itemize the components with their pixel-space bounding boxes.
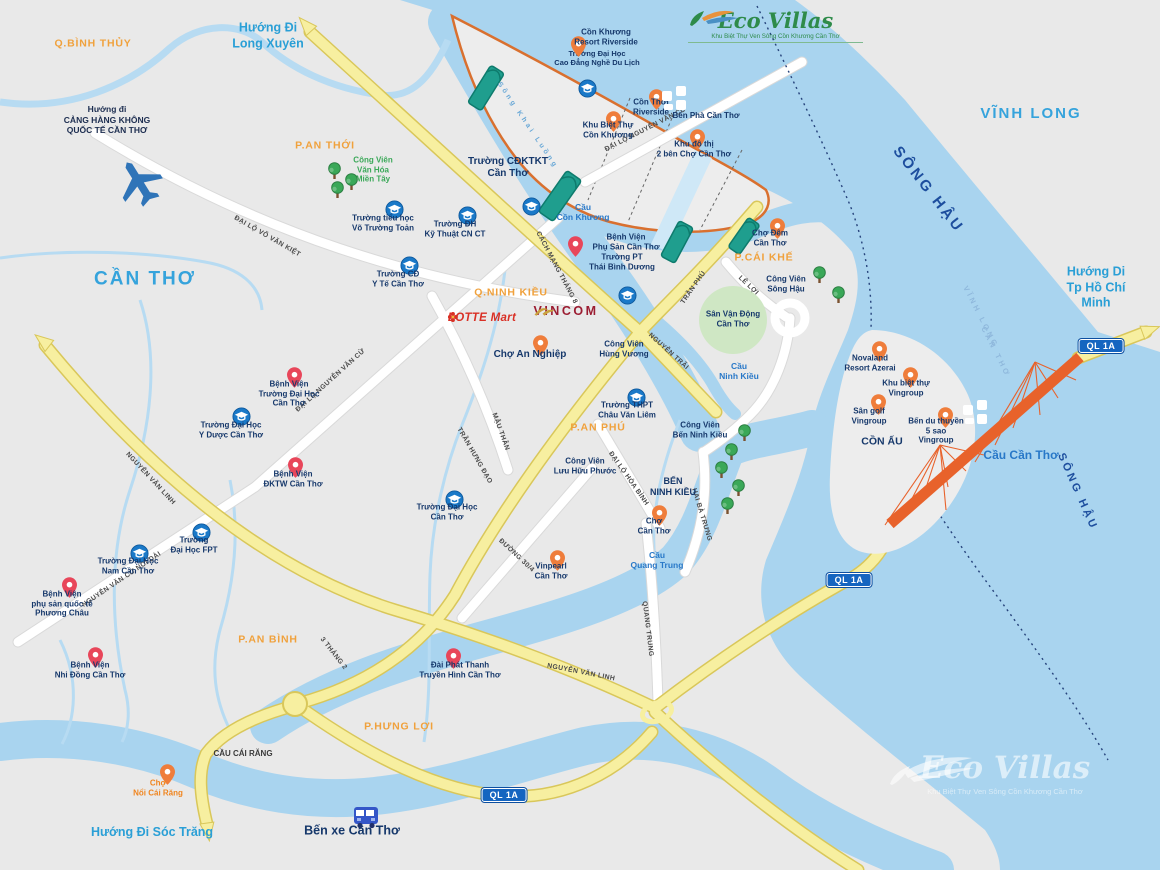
ben-ninh-kieu-label: BẾN NINH KIỀU (650, 476, 696, 498)
bv-truong-dai-hoc-can-tho-label: Bệnh Viện Trường Đại Học Cần Thơ (259, 380, 320, 409)
lotte-flower-icon (448, 312, 458, 322)
novaland-resort-azerai-label: Novaland Resort Azerai (844, 353, 895, 372)
ben-pha-can-tho-label: Bến Phà Cần Thơ (672, 111, 739, 121)
truong-pt-thai-binh-duong-label: Trường PT Thái Bình Dương (589, 252, 655, 271)
truong-cdktkt-can-tho-label: Trường CĐKTKT Cần Thơ (468, 156, 548, 180)
huong-di-soc-trang-label: Hướng Đi Sóc Trăng (91, 825, 213, 841)
huong-di-san-bay-label: Hướng đi CẢNG HÀNG KHÔNG QUỐC TẾ CẦN THƠ (64, 104, 150, 136)
tran-phu-label: TRẦN PHÚ (680, 270, 709, 306)
truong-dh-nam-can-tho-label: Trường Đại Học Nam Cần Thơ (98, 556, 159, 575)
ben-du-thuyen-vingroup-label: Bến du thuyền 5 sao Vingroup (908, 417, 964, 446)
cau-cai-rang-label: CẦU CÁI RĂNG (213, 749, 272, 759)
bv-nhi-dong-can-tho-label: Bệnh Viện Nhi Đồng Cần Thơ (55, 660, 126, 679)
p-an-phu-label: P.AN PHÚ (570, 422, 625, 435)
map-canvas[interactable]: CẦN THƠVĨNH LONGQ.BÌNH THỦYP.AN THỚIQ.NI… (0, 0, 1160, 870)
ben-xe-can-tho-label: Bến xe Cần Thơ (304, 824, 400, 839)
san-golf-vingroup-label: Sân golf Vingroup (852, 406, 887, 425)
dai-phat-thanh-truyen-hinh-label: Đài Phát Thanh Truyền Hình Cần Thơ (419, 660, 500, 679)
le-loi-label: LÊ LỢI (736, 275, 760, 298)
boundary-can-tho-label: CẦN THƠ (979, 325, 1012, 379)
huong-di-long-xuyen-label: Hướng Đi Long Xuyên (232, 20, 304, 51)
truong-dh-ky-thuat-cn-ct-label: Trường ĐH Kỹ Thuật CN CT (425, 219, 486, 238)
q-ninh-kieu-label: Q.NINH KIỀU (474, 287, 548, 300)
cong-vien-song-hau-label: Công Viên Sông Hậu (766, 274, 805, 293)
can-tho-label: CẦN THƠ (94, 269, 196, 292)
truong-cd-y-te-can-tho-label: Trường CĐ Y Tế Cần Thơ (372, 269, 424, 288)
cho-dem-can-tho-label: Chợ Đêm Cần Thơ (752, 228, 788, 247)
ql1a-south-badge: QL 1A (482, 788, 527, 802)
cho-noi-cai-rang-label: Chợ Nổi Cái Răng (133, 778, 183, 797)
nguyen-van-linh-west-label: NGUYỄN VĂN LINH (123, 451, 176, 507)
logo-tagline: Khu Biệt Thự Ven Sông Cồn Khương Cần Thơ (688, 33, 863, 43)
cau-quang-trung-label: Cầu Quang Trung (631, 550, 684, 570)
bv-dktw-can-tho-label: Bệnh Viện ĐKTW Cần Thơ (263, 469, 322, 488)
san-van-dong-can-tho-label: Sân Vận Động Cần Thơ (706, 309, 760, 328)
p-cai-khe-label: P.CÁI KHẾ (735, 252, 794, 265)
cho-an-nghiep-label: Chợ An Nghiệp (494, 349, 567, 361)
khu-biet-thu-con-khuong-label: Khu Biệt Thự Cồn Khương (583, 120, 634, 139)
cau-ninh-kieu-label: Cầu Ninh Kiều (719, 361, 759, 381)
truong-dai-hoc-fp-label: Trường Đại Học FPT (170, 535, 217, 554)
q-binh-thuy-label: Q.BÌNH THỦY (54, 38, 131, 51)
cong-vien-hung-vuong-label: Công Viên Hùng Vương (599, 339, 648, 358)
leaf-icon (688, 10, 740, 26)
tran-hung-dao-label: TRẦN HƯNG ĐẠO (455, 426, 494, 485)
ql1a-mid-badge: QL 1A (827, 573, 872, 587)
vincom-bird-icon (534, 305, 556, 317)
cong-vien-van-hoa-mien-tay-label: Công Viên Văn Hóa Miền Tây (353, 156, 392, 185)
p-an-binh-label: P.AN BÌNH (238, 634, 298, 647)
quang-trung-label: QUANG TRUNG (640, 601, 655, 657)
bv-phuong-chau-label: Bệnh Viện phụ sản quốc tế Phương Châu (31, 590, 92, 619)
nguyen-van-linh-east-label: NGUYỄN VĂN LINH (546, 662, 615, 683)
khu-do-thi-2-ben-label: Khu đô thị 2 bên Chợ Cần Thơ (657, 139, 732, 158)
con-khuong-resort-riverside-label: Cồn Khương Resort Riverside (574, 27, 638, 46)
nguyen-trai-label: NGUYỄN TRÃI (646, 332, 690, 372)
watermark-tagline: Khu Biệt Thự Ven Sông Cồn Khương Cần Thơ (860, 787, 1150, 796)
khu-biet-thu-vingroup-label: Khu biệt thự Vingroup (882, 378, 930, 397)
mau-than-label: MẬU THÂN (489, 412, 510, 452)
con-au-label: CỒN ẤU (861, 436, 902, 449)
truong-tieu-hoc-vo-truong-toan-label: Trường tiểu học Võ Trường Toản (352, 213, 414, 232)
truong-dai-hoc-can-tho-label: Trường Đại Học Cần Thơ (417, 502, 478, 521)
3-thang-2-label: 3 THÁNG 2 (318, 636, 349, 672)
truong-thpt-chau-van-liem-label: Trường THPT Châu Văn Liêm (598, 400, 656, 419)
eco-villas-logo: Eco Villas Khu Biệt Thự Ven Sông Cồn Khư… (688, 10, 863, 43)
cong-vien-ben-ninh-kieu-label: Công Viên Bến Ninh Kiều (673, 420, 728, 439)
bv-phu-san-can-tho-label: Bệnh Viện Phụ Sản Cần Thơ (592, 232, 659, 251)
watermark-leaf-icon (860, 752, 980, 786)
lotte-mart-label: LOTTE Mart (448, 312, 516, 324)
cau-can-tho-label: Cầu Cần Thơ (983, 448, 1058, 462)
lotte-mart-logo[interactable]: LOTTE Mart (448, 312, 516, 324)
vinpearl-can-tho-label: Vinpearl Cần Thơ (535, 561, 568, 580)
cau-con-khuong-label: Cầu Cồn Khương (557, 202, 610, 222)
dai-lo-vo-van-kiet-label: ĐẠI LỘ VÕ VĂN KIỆT (232, 215, 302, 260)
vinh-long-label: VĨNH LONG (980, 105, 1081, 123)
duong-30-4-label: ĐƯỜNG 30/4 (497, 537, 536, 574)
ql1a-east-badge: QL 1A (1079, 339, 1124, 353)
song-hau-lower-label: SÔNG HẬU (1054, 451, 1100, 532)
cho-can-tho-label: Chợ Cần Thơ (638, 516, 671, 535)
huong-di-tphcm-label: Hướng Di Tp Hồ Chí Minh (1064, 265, 1128, 312)
cong-vien-luu-huu-phuoc-label: Công Viên Lưu Hữu Phước (554, 456, 617, 475)
p-an-thoi-label: P.AN THỚI (295, 140, 355, 153)
vincom-logo[interactable]: VINCOM (534, 305, 599, 318)
p-hung-loi-label: P.HƯNG LỢI (364, 721, 434, 734)
truong-dh-y-duoc-can-tho-label: Trường Đại Học Y Dược Cần Thơ (199, 420, 263, 439)
eco-villas-watermark: Eco Villas Khu Biệt Thự Ven Sông Cồn Khư… (860, 752, 1150, 796)
truong-dh-cao-dang-nghe-du-lich-label: Trường Đại Học Cao Đẳng Nghề Du Lịch (554, 49, 639, 67)
song-hau-upper-label: SÔNG HẬU (889, 143, 968, 237)
